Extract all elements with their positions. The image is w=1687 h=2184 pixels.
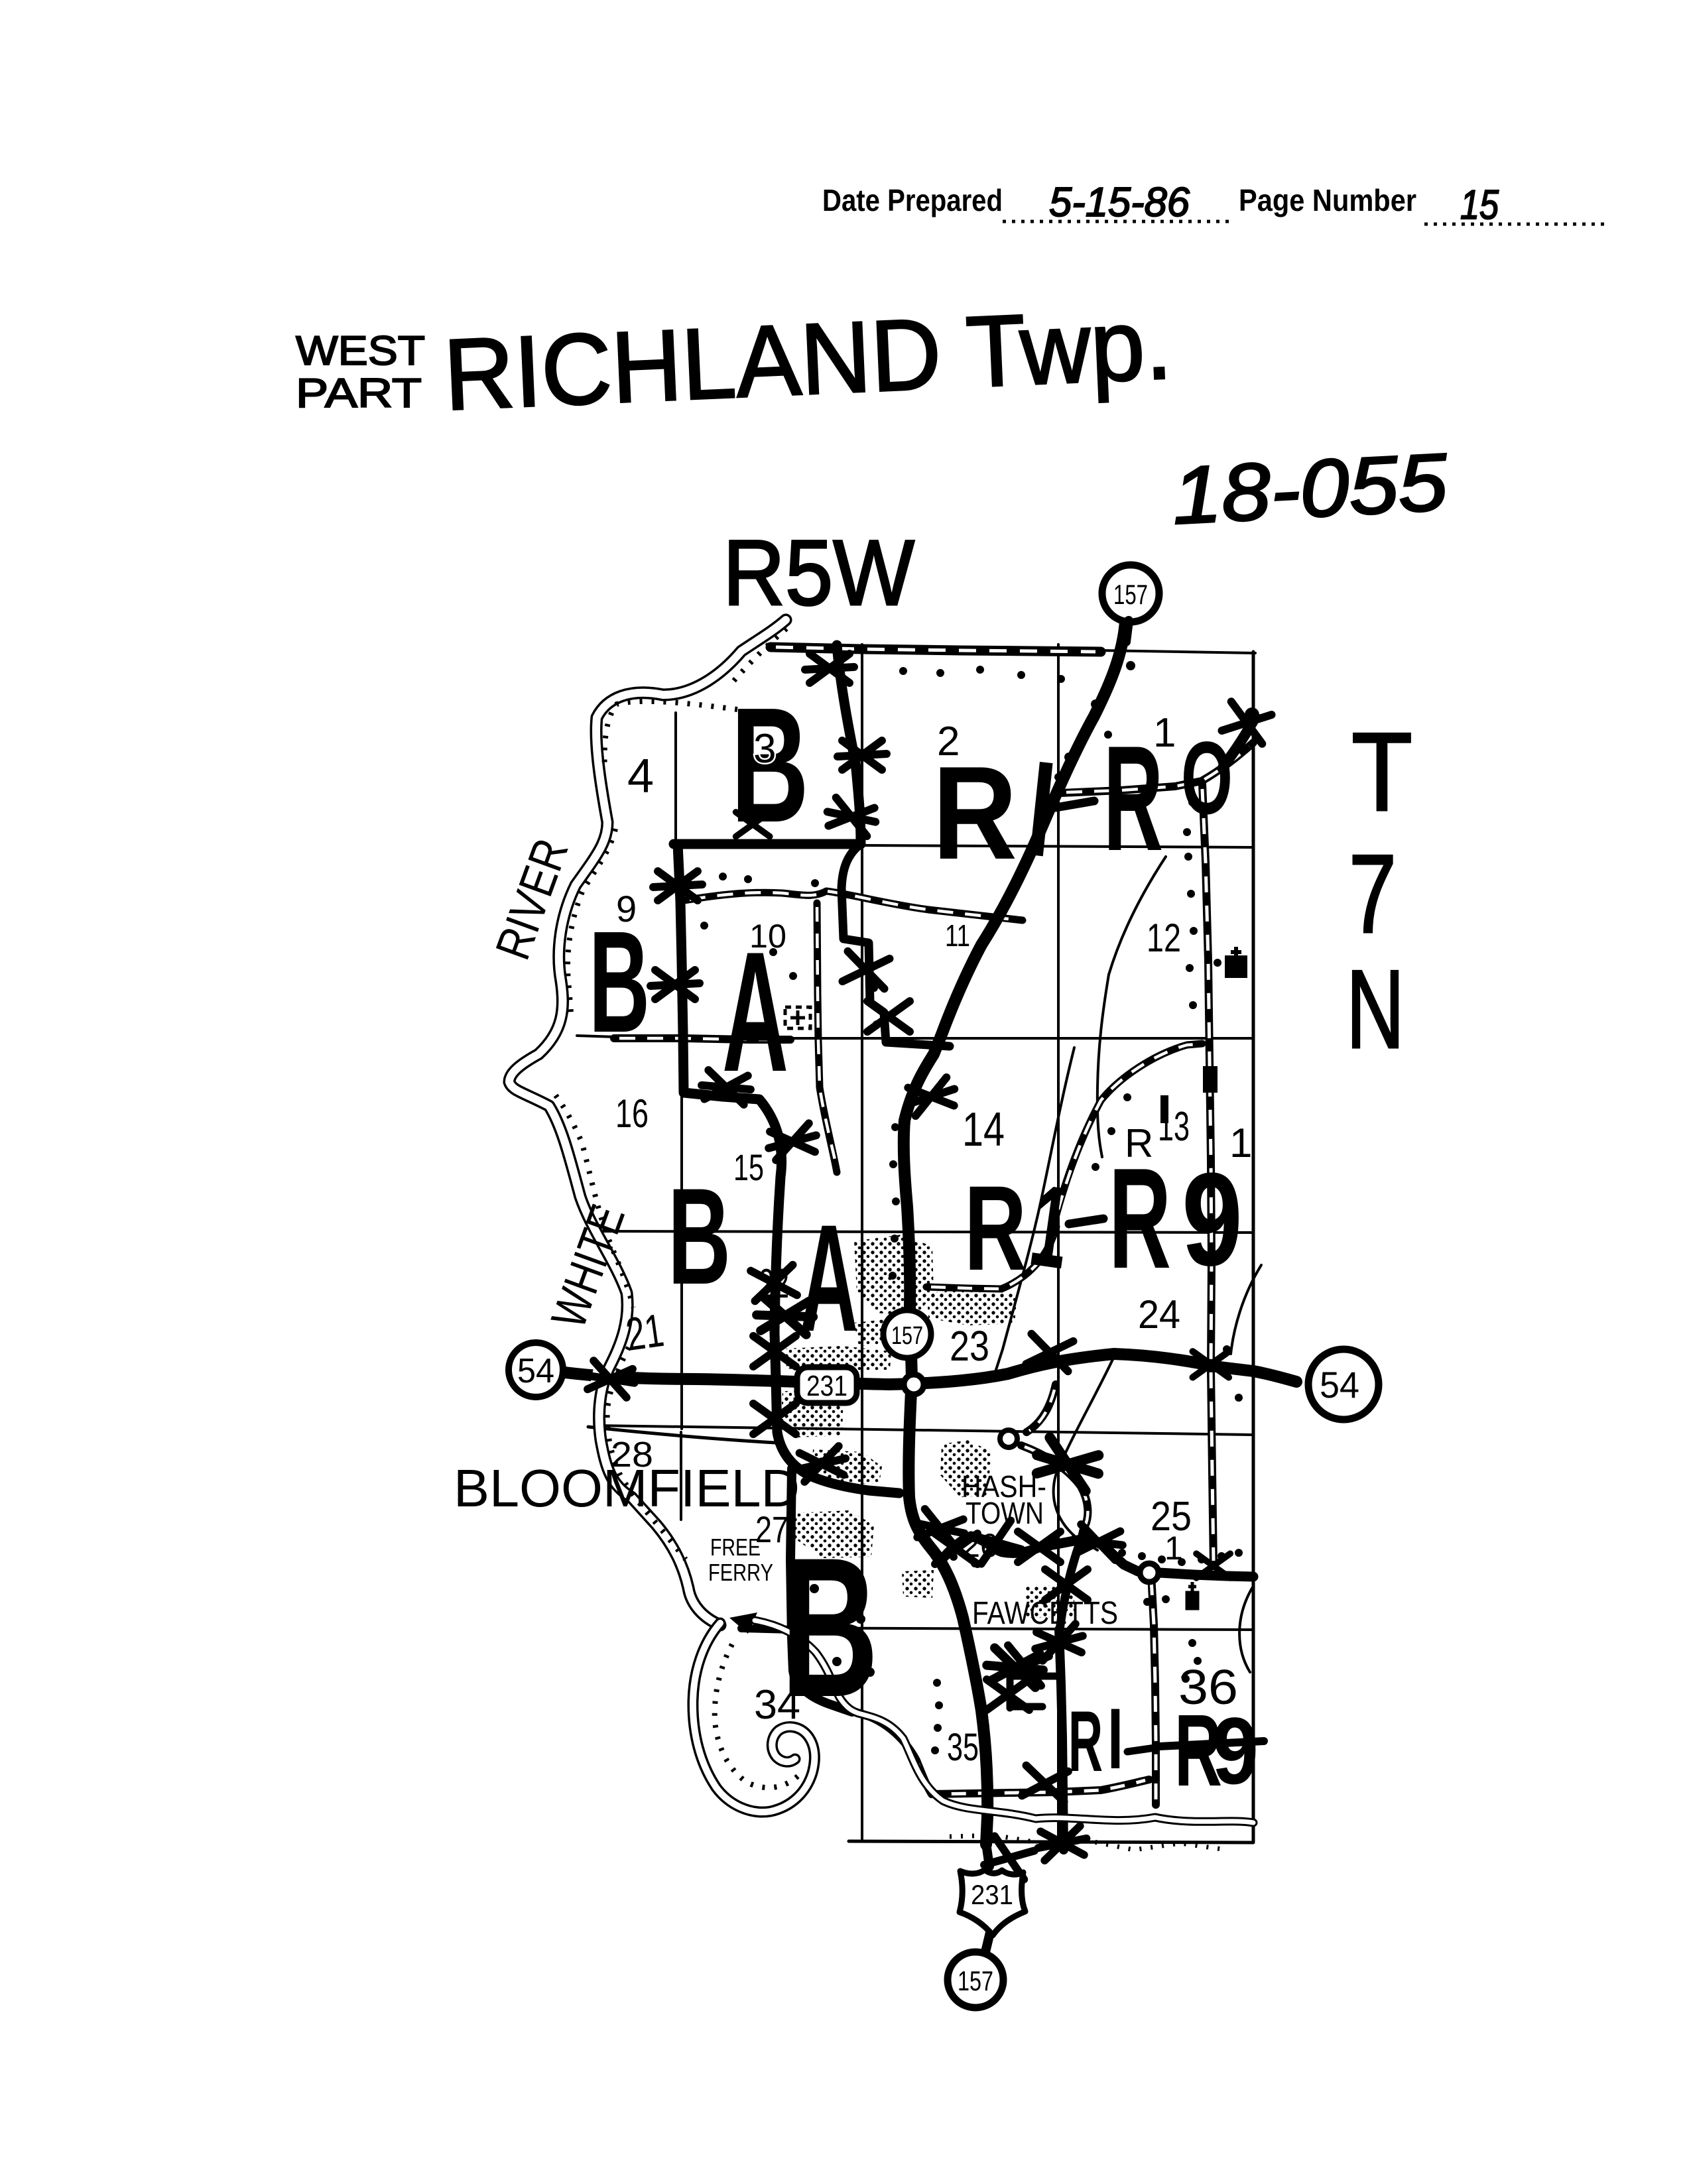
svg-text:4: 4: [627, 750, 654, 803]
svg-text:1: 1: [1229, 1121, 1252, 1166]
svg-text:R: R: [964, 1160, 1027, 1296]
svg-text:WEST: WEST: [296, 328, 425, 374]
svg-text:Page Number: Page Number: [1239, 183, 1416, 217]
svg-text:157: 157: [891, 1322, 923, 1350]
svg-text:11: 11: [945, 918, 970, 953]
svg-text:1: 1: [1153, 710, 1176, 756]
svg-text:231: 231: [971, 1879, 1013, 1910]
svg-text:T: T: [1351, 709, 1412, 834]
svg-text:22: 22: [759, 1261, 789, 1307]
svg-text:34: 34: [754, 1682, 800, 1728]
svg-text:5-15-86: 5-15-86: [1049, 180, 1190, 225]
svg-text:15: 15: [1460, 182, 1499, 228]
svg-text:26: 26: [962, 1527, 998, 1564]
svg-text:12: 12: [1147, 916, 1181, 960]
svg-text:157: 157: [1113, 579, 1148, 610]
svg-text:R: R: [1068, 1693, 1103, 1790]
svg-text:157: 157: [958, 1965, 993, 1996]
svg-text:10: 10: [749, 918, 786, 955]
svg-text:O: O: [1181, 721, 1233, 836]
svg-text:I: I: [1107, 1690, 1123, 1787]
svg-text:1: 1: [1164, 1530, 1183, 1567]
svg-text:23: 23: [950, 1322, 989, 1370]
svg-text:N: N: [1346, 947, 1405, 1071]
svg-text:9: 9: [1182, 1146, 1243, 1294]
svg-text:13: 13: [1158, 1104, 1190, 1150]
svg-text:2: 2: [937, 719, 960, 764]
svg-text:Date Prepared: Date Prepared: [822, 183, 1003, 217]
svg-text:16: 16: [615, 1091, 649, 1136]
svg-text:14: 14: [962, 1103, 1005, 1156]
svg-text:A: A: [800, 1193, 858, 1363]
svg-text:9: 9: [616, 888, 637, 930]
svg-text:FERRY: FERRY: [708, 1559, 773, 1586]
svg-text:35: 35: [947, 1726, 979, 1769]
svg-text:FREE: FREE: [710, 1534, 761, 1561]
svg-text:7: 7: [1349, 831, 1397, 956]
svg-text:24: 24: [1138, 1292, 1180, 1337]
svg-text:R5W: R5W: [723, 520, 914, 625]
svg-text:15: 15: [733, 1146, 764, 1188]
svg-text:BLOOMFIELD: BLOOMFIELD: [454, 1459, 800, 1518]
svg-text:231: 231: [806, 1370, 847, 1402]
svg-text:FAWCETTS: FAWCETTS: [972, 1596, 1118, 1631]
svg-text:TOWN: TOWN: [966, 1496, 1044, 1530]
svg-text:3: 3: [753, 726, 776, 772]
svg-text:18-055: 18-055: [1170, 436, 1450, 541]
svg-text:36: 36: [1178, 1660, 1238, 1715]
svg-text:B: B: [668, 1160, 731, 1313]
svg-text:R: R: [1125, 1121, 1153, 1166]
svg-text:54: 54: [517, 1352, 554, 1390]
svg-text:54: 54: [1320, 1364, 1359, 1406]
svg-text:PART: PART: [296, 371, 422, 416]
svg-text:21: 21: [623, 1304, 666, 1361]
